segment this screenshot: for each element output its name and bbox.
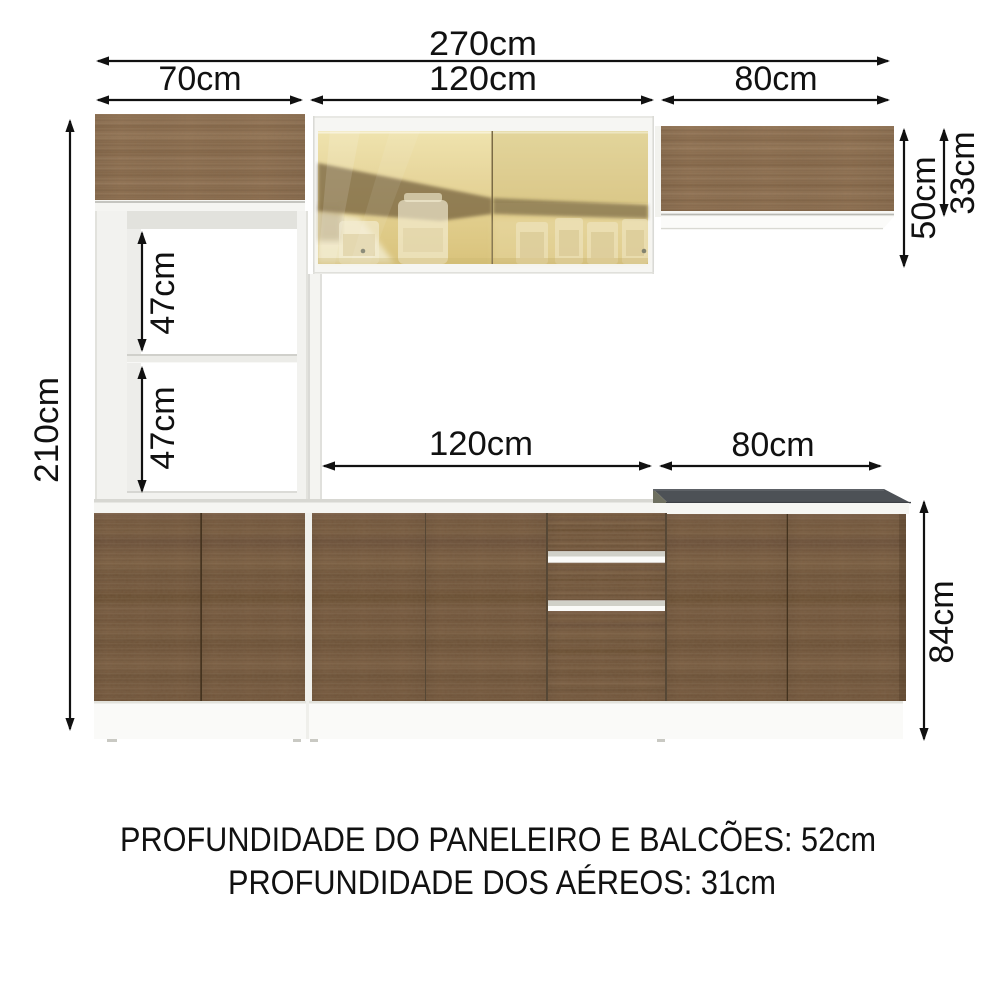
svg-text:80cm: 80cm — [734, 60, 817, 98]
svg-text:210cm: 210cm — [28, 377, 66, 483]
svg-text:47cm: 47cm — [144, 251, 182, 334]
svg-text:120cm: 120cm — [429, 60, 537, 98]
svg-text:270cm: 270cm — [429, 25, 537, 63]
svg-text:50cm: 50cm — [905, 156, 943, 239]
svg-text:33cm: 33cm — [944, 131, 982, 214]
svg-text:80cm: 80cm — [731, 426, 814, 464]
svg-text:84cm: 84cm — [923, 580, 961, 663]
svg-text:47cm: 47cm — [144, 386, 182, 469]
svg-text:120cm: 120cm — [429, 425, 533, 463]
svg-text:PROFUNDIDADE DOS AÉREOS: 31cm: PROFUNDIDADE DOS AÉREOS: 31cm — [228, 864, 776, 902]
svg-text:PROFUNDIDADE DO PANELEIRO E BA: PROFUNDIDADE DO PANELEIRO E BALCÕES: 52c… — [120, 821, 876, 859]
svg-text:70cm: 70cm — [158, 60, 241, 98]
